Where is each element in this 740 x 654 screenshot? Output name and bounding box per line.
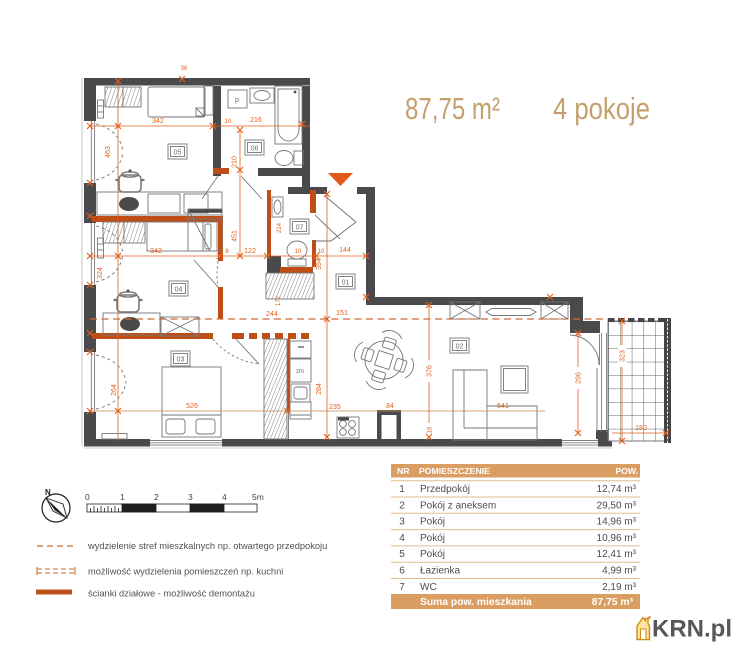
svg-text:172: 172: [276, 295, 282, 306]
svg-text:wydzielenie stref mieszkalnych: wydzielenie stref mieszkalnych np. otwar…: [87, 541, 327, 551]
svg-text:451: 451: [232, 230, 239, 242]
svg-text:01: 01: [342, 280, 350, 287]
svg-text:4 pokoje: 4 pokoje: [553, 91, 650, 126]
svg-text:NR: NR: [397, 466, 410, 476]
svg-text:526: 526: [186, 403, 198, 410]
svg-text:POMIESZCZENIE: POMIESZCZENIE: [419, 466, 490, 476]
svg-text:02: 02: [456, 344, 464, 351]
svg-text:394: 394: [316, 258, 323, 270]
svg-text:29,50 m³: 29,50 m³: [597, 500, 637, 511]
svg-text:244: 244: [266, 311, 278, 318]
svg-text:3: 3: [399, 517, 405, 528]
svg-text:7: 7: [399, 582, 405, 593]
svg-text:ścianki działowe - możliwość: ścianki działowe - możliwość demontażu: [88, 589, 255, 599]
svg-text:1: 1: [120, 492, 125, 502]
svg-text:04: 04: [175, 287, 183, 294]
svg-text:3: 3: [188, 492, 193, 502]
svg-text:2,19 m³: 2,19 m³: [602, 582, 637, 593]
svg-text:2: 2: [154, 492, 159, 502]
svg-text:4,99 m³: 4,99 m³: [602, 566, 637, 577]
svg-text:6: 6: [399, 566, 405, 577]
svg-text:Pokój: Pokój: [420, 533, 445, 544]
svg-text:12,74 m³: 12,74 m³: [597, 484, 637, 495]
svg-text:324: 324: [97, 267, 104, 279]
svg-text:0: 0: [85, 492, 90, 502]
svg-text:WC: WC: [420, 582, 437, 593]
svg-text:4: 4: [222, 492, 227, 502]
svg-text:10,96 m³: 10,96 m³: [597, 533, 637, 544]
svg-text:5: 5: [399, 549, 405, 560]
svg-text:214: 214: [277, 222, 283, 233]
svg-text:POW.: POW.: [615, 466, 638, 476]
svg-text:376: 376: [427, 365, 434, 377]
svg-text:87,75 m²: 87,75 m²: [405, 91, 500, 126]
svg-text:05: 05: [174, 150, 182, 157]
svg-text:284: 284: [316, 383, 323, 395]
svg-text:264: 264: [111, 384, 118, 396]
svg-text:Pokój: Pokój: [420, 517, 445, 528]
svg-text:342: 342: [152, 118, 164, 125]
svg-text:Przedpokój: Przedpokój: [420, 484, 470, 495]
svg-text:463: 463: [105, 146, 112, 158]
svg-text:84: 84: [386, 403, 394, 410]
svg-text:216: 216: [250, 117, 262, 124]
svg-text:możliwość wydzielenia pomieszc: możliwość wydzielenia pomieszczeń np. ku…: [88, 567, 283, 577]
svg-text:12,41 m³: 12,41 m³: [597, 549, 637, 560]
svg-text:1: 1: [399, 484, 405, 495]
svg-text:14,96 m³: 14,96 m³: [597, 517, 637, 528]
svg-text:16: 16: [428, 426, 434, 433]
svg-text:323: 323: [620, 350, 627, 362]
svg-text:2: 2: [399, 500, 405, 511]
svg-text:541: 541: [497, 403, 509, 410]
svg-text:06: 06: [251, 146, 259, 153]
svg-text:Suma pow. mieszkania: Suma pow. mieszkania: [420, 597, 532, 608]
svg-text:Łazienka: Łazienka: [420, 566, 460, 577]
svg-text:87,75 m³: 87,75 m³: [592, 597, 634, 608]
svg-text:10: 10: [318, 249, 325, 255]
svg-text:342: 342: [150, 248, 162, 255]
svg-text:p: p: [235, 97, 239, 104]
svg-text:10: 10: [225, 119, 232, 125]
svg-text:07: 07: [296, 225, 304, 232]
svg-text:Pokój: Pokój: [420, 549, 445, 560]
svg-text:4: 4: [399, 533, 405, 544]
svg-text:zm: zm: [296, 369, 304, 375]
svg-text:296: 296: [576, 372, 583, 384]
svg-text:Pokój z aneksem: Pokój z aneksem: [420, 500, 496, 511]
svg-text:36: 36: [181, 66, 188, 72]
svg-text:03: 03: [177, 357, 185, 364]
svg-text:144: 144: [339, 247, 351, 254]
svg-text:N: N: [45, 488, 51, 497]
svg-text:151: 151: [336, 310, 348, 317]
svg-text:5m: 5m: [252, 492, 264, 502]
svg-text:122: 122: [244, 248, 256, 255]
svg-text:KRN.pl: KRN.pl: [652, 616, 732, 643]
svg-text:210: 210: [232, 156, 239, 168]
svg-text:10: 10: [295, 249, 302, 255]
svg-text:235: 235: [329, 404, 341, 411]
svg-text:180: 180: [635, 425, 647, 432]
